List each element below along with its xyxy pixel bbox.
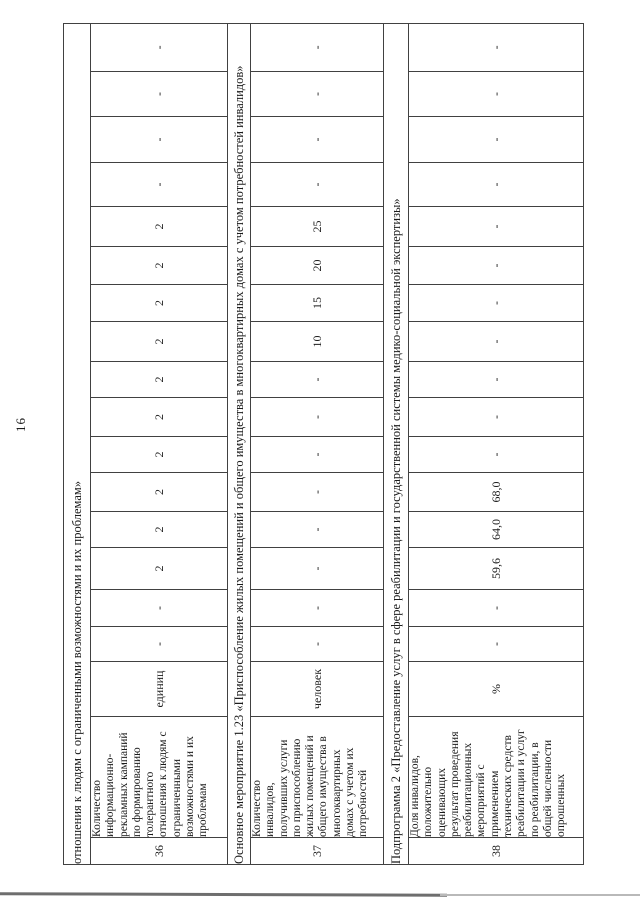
indicator-value-cell: 59,6 xyxy=(409,548,584,590)
indicator-unit-cell: единиц xyxy=(91,662,228,717)
indicator-value-cell: - xyxy=(409,117,584,163)
indicator-value-cell: 2 xyxy=(91,322,228,362)
rotated-page: 16 отношения к людям с ограниченными воз… xyxy=(0,0,640,901)
indicator-value-cell: - xyxy=(251,163,384,207)
continuation-text-cell: отношения к людям с ограниченными возмож… xyxy=(64,23,91,864)
indicator-value-cell: - xyxy=(251,23,384,71)
indicator-value-cell: - xyxy=(409,437,584,473)
indicator-value-cell: - xyxy=(251,362,384,398)
indicator-value-cell: 10 xyxy=(251,322,384,362)
indicator-row: 36Количествоинформационно-рекламных камп… xyxy=(91,23,228,864)
indicator-value-cell: - xyxy=(251,548,384,590)
indicator-value-cell: - xyxy=(251,473,384,512)
indicator-number-cell: 38 xyxy=(409,838,584,865)
indicator-value-cell: 2 xyxy=(91,473,228,512)
indicator-value-cell: 2 xyxy=(91,398,228,437)
indicator-value-cell: - xyxy=(91,590,228,627)
indicator-unit-cell: человек xyxy=(251,662,384,717)
indicator-row: 38Доля инвалидов,положительнооценивающих… xyxy=(409,23,584,864)
indicator-value-cell: - xyxy=(409,590,584,627)
section-title-cell: Основное мероприятие 1.23 «Приспособлени… xyxy=(228,23,251,864)
section-row: Основное мероприятие 1.23 «Приспособлени… xyxy=(228,23,251,864)
indicator-value-cell: 2 xyxy=(91,247,228,285)
indicator-value-cell: 2 xyxy=(91,437,228,473)
indicator-value-cell: 20 xyxy=(251,247,384,285)
indicator-value-cell: - xyxy=(409,362,584,398)
indicator-value-cell: 2 xyxy=(91,207,228,247)
indicator-value-cell: 68,0 xyxy=(409,473,584,512)
indicator-value-cell: - xyxy=(409,163,584,207)
indicator-value-cell: - xyxy=(91,627,228,662)
indicator-value-cell: 2 xyxy=(91,548,228,590)
indicator-value-cell: - xyxy=(91,163,228,207)
indicator-value-cell: - xyxy=(91,117,228,163)
section-row: Подпрограмма 2 «Предоставление услуг в с… xyxy=(384,23,409,864)
indicator-value-cell: - xyxy=(91,72,228,117)
indicator-value-cell: 15 xyxy=(251,285,384,322)
indicator-value-cell: - xyxy=(251,512,384,548)
indicator-name-cell: Доля инвалидов,положительнооценивающихре… xyxy=(409,717,584,838)
continuation-row: отношения к людям с ограниченными возмож… xyxy=(64,23,91,864)
indicator-value-cell: - xyxy=(251,117,384,163)
indicator-value-cell: - xyxy=(251,437,384,473)
indicator-value-cell: - xyxy=(409,72,584,117)
program-indicators-table: отношения к людям с ограниченными возмож… xyxy=(63,23,584,865)
indicator-value-cell: - xyxy=(409,285,584,322)
indicator-value-cell: - xyxy=(409,322,584,362)
indicator-unit-cell: % xyxy=(409,662,584,717)
table-body: отношения к людям с ограниченными возмож… xyxy=(64,23,584,864)
indicator-value-cell: 25 xyxy=(251,207,384,247)
indicator-name-cell: Количествоинвалидов,получивших услугипо … xyxy=(251,717,384,838)
indicator-value-cell: - xyxy=(91,23,228,71)
indicator-value-cell: - xyxy=(251,627,384,662)
indicator-row: 37Количествоинвалидов,получивших услугип… xyxy=(251,23,384,864)
indicator-number-cell: 36 xyxy=(91,838,228,865)
indicator-value-cell: - xyxy=(251,590,384,627)
page-number: 16 xyxy=(13,0,29,901)
section-title-cell: Подпрограмма 2 «Предоставление услуг в с… xyxy=(384,23,409,864)
indicator-value-cell: - xyxy=(409,398,584,437)
indicator-value-cell: 64,0 xyxy=(409,512,584,548)
indicator-value-cell: - xyxy=(409,247,584,285)
scan-edge-artifact-faint xyxy=(440,894,640,896)
indicator-value-cell: - xyxy=(409,23,584,71)
indicator-value-cell: 2 xyxy=(91,285,228,322)
indicator-name-cell: Количествоинформационно-рекламных кампан… xyxy=(91,717,228,838)
indicator-value-cell: 2 xyxy=(91,362,228,398)
indicator-value-cell: - xyxy=(251,72,384,117)
indicator-value-cell: 2 xyxy=(91,512,228,548)
indicator-value-cell: - xyxy=(251,398,384,437)
indicator-value-cell: - xyxy=(409,627,584,662)
scanned-document-page: 16 отношения к людям с ограниченными воз… xyxy=(0,0,640,901)
indicator-value-cell: - xyxy=(409,207,584,247)
indicator-number-cell: 37 xyxy=(251,838,384,865)
